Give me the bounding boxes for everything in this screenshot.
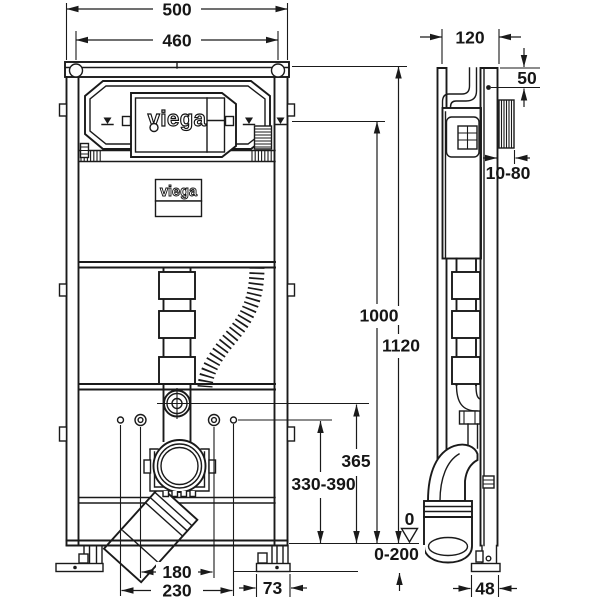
dim-foot-depth: 48 [453, 575, 517, 599]
datum-marker: 0 [402, 509, 418, 542]
dim-foot-width: 73 [239, 574, 307, 598]
hanger-hole-right [272, 64, 285, 77]
side-view [424, 68, 514, 572]
foot-plate-left [56, 564, 103, 572]
dim-total-height: 1120 [292, 67, 424, 544]
registered-mark-icon [150, 124, 158, 132]
svg-text:365: 365 [341, 451, 370, 471]
dim-top-fixing: 50 [486, 48, 540, 107]
foot-plate-right [257, 564, 291, 572]
rear-rail-side [481, 68, 498, 546]
technical-drawing-page: viega viega [0, 0, 600, 600]
wc-frame-technical-drawing: viega viega [0, 0, 600, 600]
svg-text:73: 73 [263, 578, 283, 598]
rail-clamp [483, 476, 494, 488]
front-view: viega viega [56, 62, 295, 582]
svg-text:50: 50 [517, 68, 537, 88]
hanger-hole-left [70, 64, 83, 77]
svg-text:500: 500 [162, 0, 191, 20]
fill-valve-box [447, 117, 480, 157]
side-leg-foot [472, 546, 501, 572]
svg-text:330-390: 330-390 [291, 474, 355, 494]
label-blank [156, 201, 202, 217]
dim-wall-clearance: 10-80 [483, 150, 531, 183]
flush-pipe-side [452, 259, 480, 425]
dim-span-outer: 230 [122, 581, 233, 600]
brand-logo-plate: viega [160, 184, 198, 200]
drain-elbow-side [424, 424, 478, 563]
svg-text:10-80: 10-80 [486, 163, 531, 183]
svg-text:0: 0 [405, 509, 415, 529]
dim-hole-spacing: 460 [76, 31, 278, 61]
dim-outlet-height: 330-390 [291, 421, 355, 543]
svg-text:180: 180 [162, 562, 191, 582]
svg-text:460: 460 [162, 31, 191, 51]
dim-depth: 120 [420, 28, 521, 65]
foot-plate-side [472, 564, 501, 572]
svg-text:0-200: 0-200 [374, 544, 419, 564]
mid-rail [79, 262, 275, 268]
svg-text:48: 48 [475, 579, 495, 599]
svg-text:230: 230 [162, 581, 191, 600]
dim-foot-adjust: 0-200 [368, 544, 425, 591]
svg-text:120: 120 [455, 28, 484, 48]
leader-supply [157, 388, 369, 419]
svg-text:1000: 1000 [360, 306, 399, 326]
corrugated-hose [205, 267, 257, 387]
svg-text:1120: 1120 [382, 336, 420, 356]
wall-section-hatch [499, 100, 514, 148]
outlet-bend-housing [144, 440, 216, 497]
